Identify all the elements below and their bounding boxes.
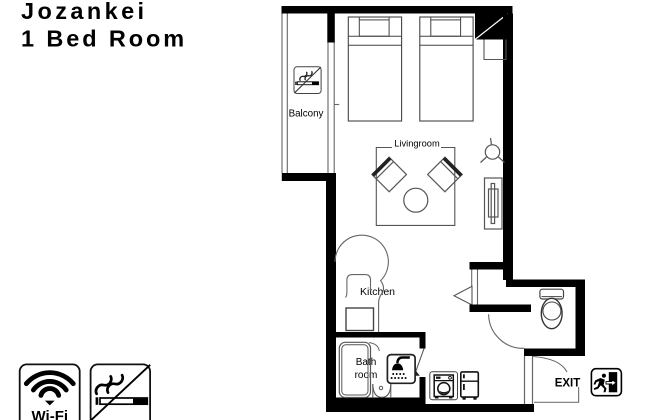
svg-text:Livingroom: Livingroom (394, 139, 440, 149)
svg-text:EXIT: EXIT (555, 378, 581, 390)
svg-text:Kitchen: Kitchen (360, 286, 395, 298)
svg-text:Balcony: Balcony (289, 109, 324, 120)
svg-text:Jozankei: Jozankei (21, 0, 147, 24)
svg-text:Bath: Bath (356, 357, 377, 368)
svg-text:room: room (355, 370, 378, 381)
svg-text:1 Bed Room: 1 Bed Room (21, 26, 187, 52)
svg-text:Wi-Fi: Wi-Fi (32, 408, 69, 420)
